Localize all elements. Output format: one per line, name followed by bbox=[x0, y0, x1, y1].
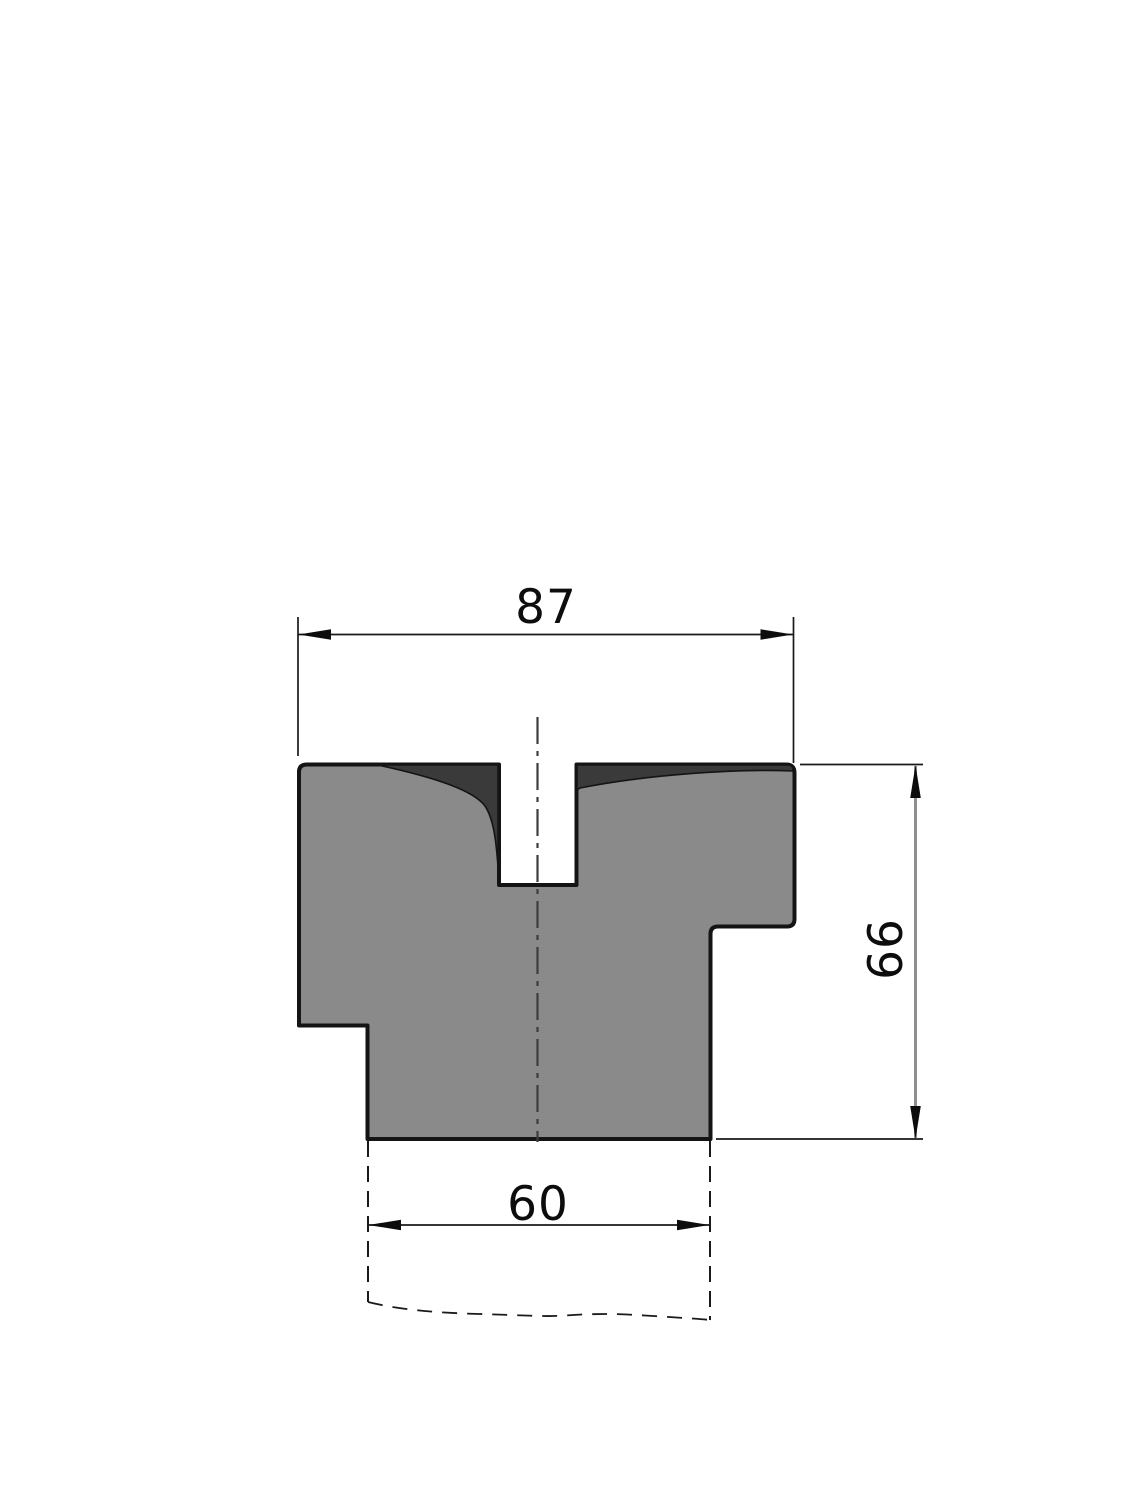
dimension-value-top-width: 87 bbox=[515, 580, 577, 635]
dimension-bottom-width: 60 bbox=[368, 1177, 710, 1232]
technical-drawing-canvas: 87 66 60 bbox=[0, 0, 1124, 1500]
part-cross-section bbox=[299, 765, 795, 1140]
break-line bbox=[368, 1302, 710, 1320]
dimension-top-width: 87 bbox=[298, 580, 794, 763]
dimension-value-bottom-width: 60 bbox=[507, 1177, 569, 1232]
arrowhead-right-icon bbox=[761, 629, 794, 640]
arrowhead-left-icon bbox=[369, 1220, 402, 1231]
arrowhead-right-icon bbox=[677, 1220, 710, 1231]
arrowhead-up-icon bbox=[910, 765, 921, 798]
dimension-value-height: 66 bbox=[859, 918, 914, 980]
part-body bbox=[299, 765, 795, 1140]
arrowhead-left-icon bbox=[299, 629, 332, 640]
arrowhead-down-icon bbox=[910, 1106, 921, 1139]
